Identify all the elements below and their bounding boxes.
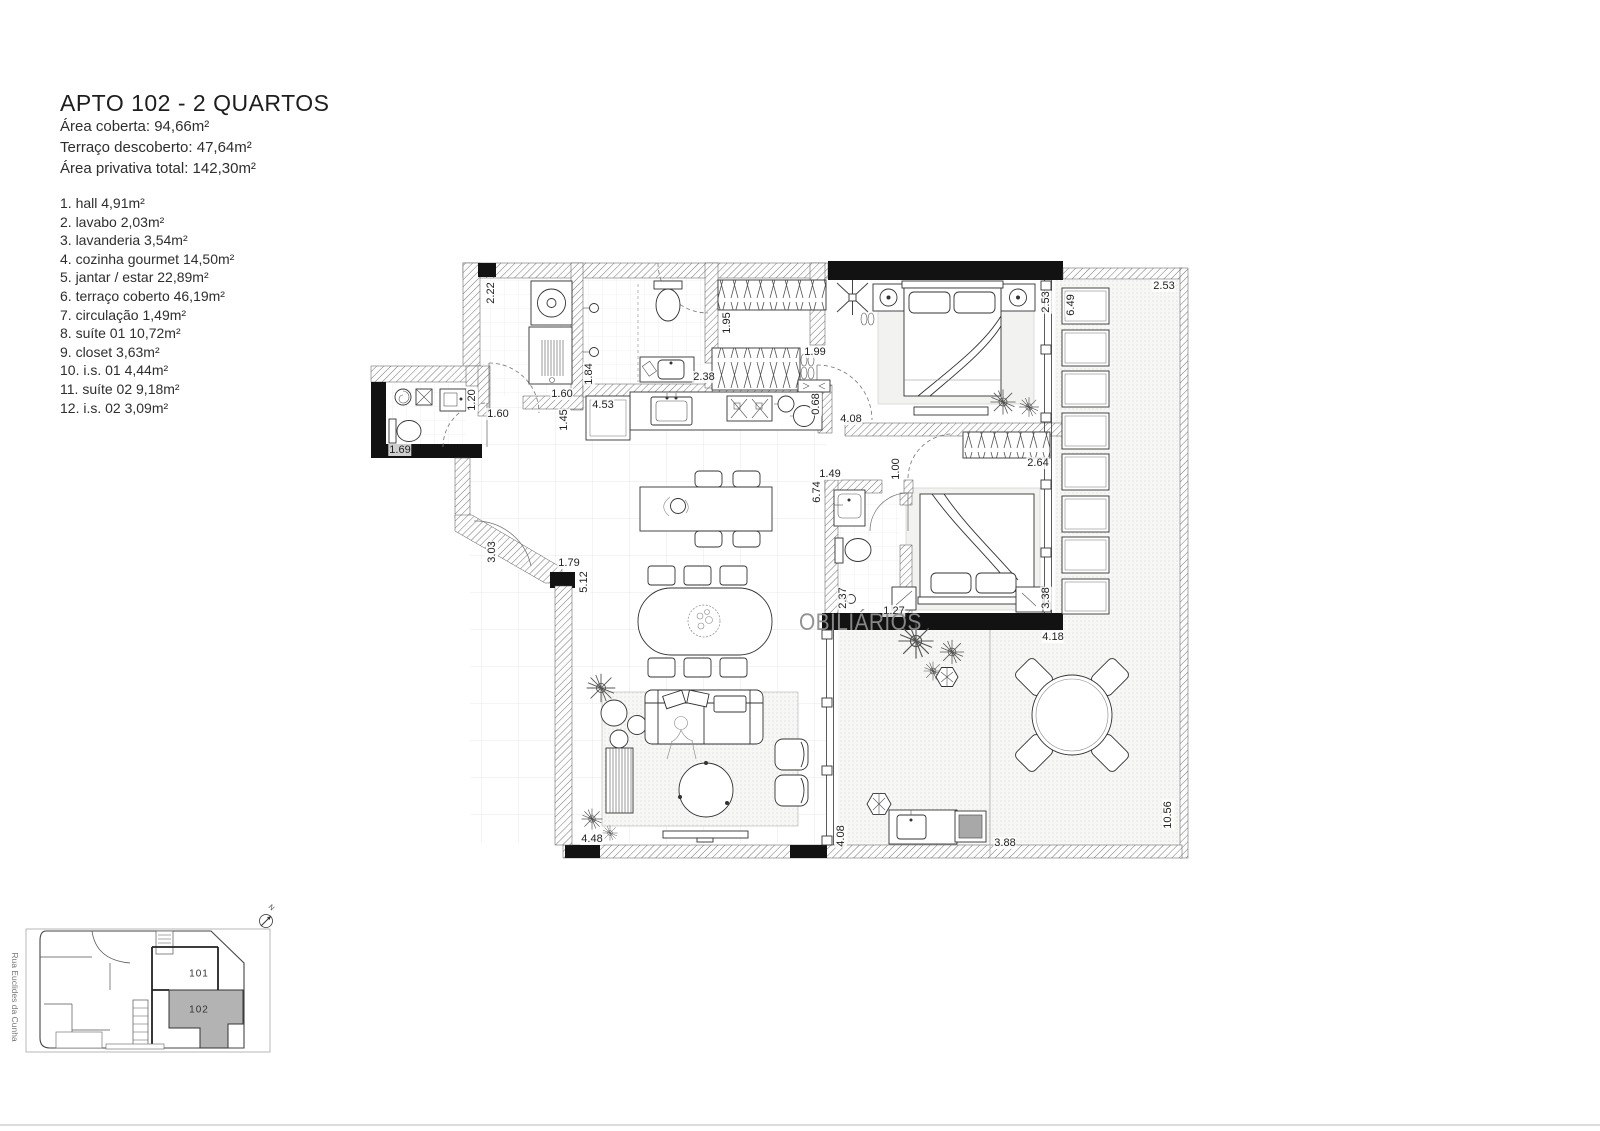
room-list: 1. hall 4,91m² 2. lavabo 2,03m² 3. lavan… — [60, 194, 234, 417]
floor-plan-drawing — [358, 248, 1200, 862]
key-plan-unit-label: 102 — [189, 1005, 209, 1016]
dimension-label: 2.64 — [1026, 457, 1049, 469]
dimension-label: 2.53 — [1040, 290, 1052, 313]
dimension-label: 4.08 — [835, 824, 847, 847]
room-list-item: 12. i.s. 02 3,09m² — [60, 399, 234, 418]
area-privativa-line: Área privativa total: 142,30m² — [60, 160, 256, 177]
dimension-label: 0.68 — [810, 392, 822, 415]
key-plan-drawing — [10, 895, 290, 1065]
dimension-label: 1.45 — [558, 408, 570, 431]
room-list-item: 3. lavanderia 3,54m² — [60, 231, 234, 250]
room-list-item: 7. circulação 1,49m² — [60, 306, 234, 325]
key-plan-unit-label: 101 — [189, 969, 209, 980]
dimension-label: 4.48 — [580, 833, 603, 845]
watermark: OBILIÁRIOS — [799, 609, 922, 637]
dimension-label: 2.37 — [837, 586, 849, 609]
dimension-label: 6.49 — [1065, 293, 1077, 316]
dimension-label: 5.12 — [578, 570, 590, 593]
terraco-descoberto-line: Terraço descoberto: 47,64m² — [60, 139, 252, 156]
room-list-item: 5. jantar / estar 22,89m² — [60, 268, 234, 287]
room-list-item: 1. hall 4,91m² — [60, 194, 234, 213]
dimension-label: 1.20 — [466, 388, 478, 411]
dimension-label: 6.74 — [811, 480, 823, 503]
dimension-label: 1.95 — [721, 311, 733, 334]
dimension-label: 10.56 — [1162, 800, 1174, 830]
room-list-item: 2. lavabo 2,03m² — [60, 213, 234, 232]
dimension-label: 3.88 — [993, 837, 1016, 849]
dimension-label: 2.22 — [485, 281, 497, 304]
dimension-label: 1.84 — [583, 362, 595, 385]
dimension-label: 1.60 — [486, 408, 509, 420]
dimension-label: 1.99 — [803, 346, 826, 358]
laundry-fixtures — [529, 281, 572, 384]
room-list-item: 11. suíte 02 9,18m² — [60, 380, 234, 399]
dimension-label: 3.03 — [486, 540, 498, 563]
page-bottom-border — [0, 1124, 1600, 1126]
room-list-item: 6. terraço coberto 46,19m² — [60, 287, 234, 306]
dimension-label: 1.79 — [557, 557, 580, 569]
dimension-label: 3.38 — [1040, 586, 1052, 609]
dimension-label: 4.53 — [591, 399, 614, 411]
dimension-label: 4.18 — [1041, 631, 1064, 643]
area-coberta-line: Área coberta: 94,66m² — [60, 118, 209, 135]
street-name-label: Rua Euclides da Cunha — [10, 952, 20, 1041]
floorplan-page: APTO 102 - 2 QUARTOS Área coberta: 94,66… — [0, 0, 1600, 1131]
north-compass-icon — [260, 915, 273, 928]
dimension-label: 1.00 — [890, 457, 902, 480]
room-list-item: 4. cozinha gourmet 14,50m² — [60, 250, 234, 269]
room-list-item: 9. closet 3,63m² — [60, 343, 234, 362]
dimension-label: 2.53 — [1152, 280, 1175, 292]
page-title: APTO 102 - 2 QUARTOS — [60, 90, 330, 117]
dimension-label: 4.08 — [839, 413, 862, 425]
room-list-item: 8. suíte 01 10,72m² — [60, 324, 234, 343]
dimension-label: 1.60 — [550, 388, 573, 400]
room-list-item: 10. i.s. 01 4,44m² — [60, 361, 234, 380]
dimension-label: 1.69 — [388, 444, 411, 456]
dimension-label: 2.38 — [692, 371, 715, 383]
dimension-label: 1.49 — [818, 468, 841, 480]
